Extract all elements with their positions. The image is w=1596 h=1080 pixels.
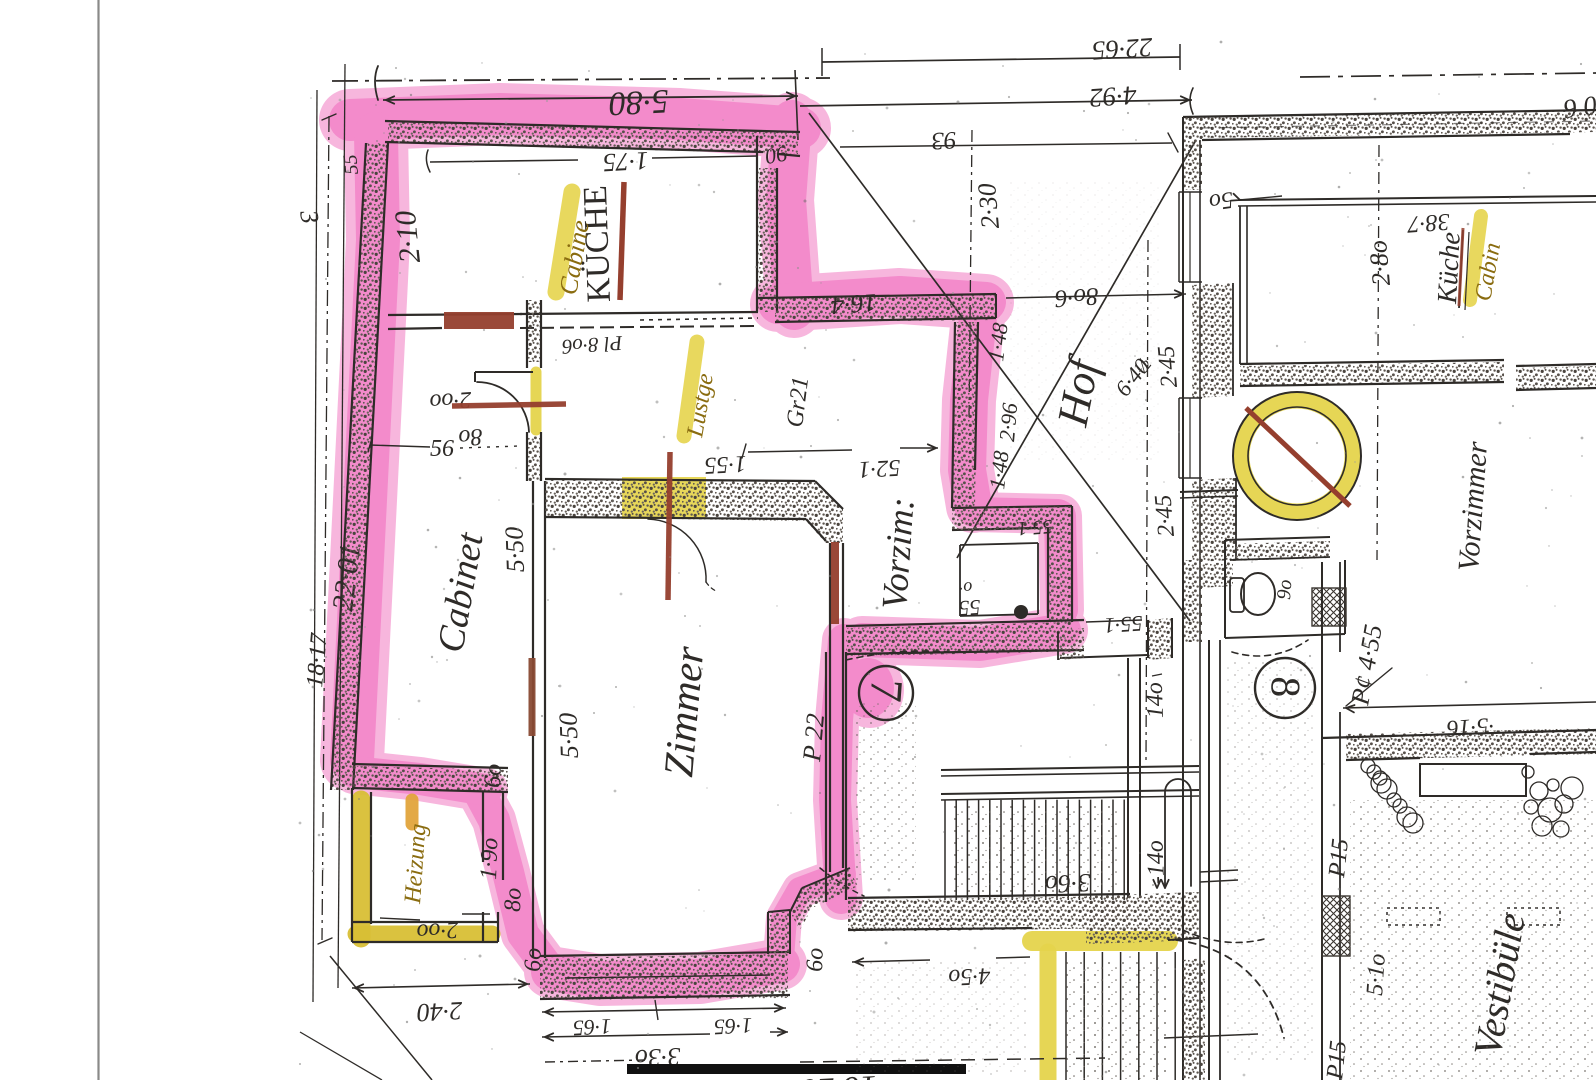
svg-text:1·9o: 1·9o	[476, 837, 503, 880]
svg-text:2·40: 2·40	[416, 996, 463, 1027]
svg-text:16·4: 16·4	[830, 288, 877, 320]
svg-text:8o: 8o	[458, 423, 484, 451]
svg-text:52·1: 52·1	[858, 454, 901, 482]
svg-text:18·17: 18·17	[302, 631, 333, 688]
svg-text:1·65: 1·65	[713, 1013, 753, 1040]
svg-text:90: 90	[763, 141, 789, 169]
svg-text:1·75: 1·75	[602, 146, 649, 177]
svg-text:8o: 8o	[500, 887, 527, 912]
svg-text:1·48: 1·48	[984, 449, 1014, 490]
svg-text:2·45: 2·45	[1150, 494, 1180, 538]
svg-text:o·: o·	[958, 578, 973, 599]
svg-text:2·oo: 2·oo	[416, 916, 460, 945]
svg-text:56: 56	[430, 436, 454, 462]
svg-text:-14o: -14o	[1142, 840, 1170, 885]
svg-text:P15: P15	[1322, 1039, 1352, 1080]
svg-text:Pl 8·o6: Pl 8·o6	[561, 331, 625, 359]
svg-text:P15: P15	[1324, 837, 1354, 879]
svg-text:2·10: 2·10	[389, 209, 427, 265]
svg-text:4·92: 4·92	[1088, 80, 1137, 113]
svg-text:55: 55	[339, 154, 363, 176]
svg-text:9o: 9o	[1273, 579, 1296, 600]
svg-text:2·oo: 2·oo	[429, 386, 473, 415]
svg-text:5·50: 5·50	[499, 526, 530, 572]
svg-text:5·50: 5·50	[553, 712, 584, 758]
svg-text:7: 7	[860, 677, 912, 704]
svg-text:1·55: 1·55	[704, 450, 747, 478]
svg-text:Vorzim:: Vorzim:	[874, 496, 922, 611]
svg-text:2·30: 2·30	[972, 182, 1005, 230]
svg-text:2·8o: 2·8o	[1363, 239, 1396, 287]
svg-text:93: 93	[931, 126, 957, 154]
svg-text:5·80: 5·80	[608, 82, 669, 122]
svg-text:14o: 14o	[1142, 682, 1169, 719]
svg-text:6o: 6o	[480, 763, 507, 788]
svg-text:22·65: 22·65	[1091, 32, 1154, 66]
svg-text:6o: 6o	[802, 947, 829, 972]
svg-text:6o: 6o	[520, 947, 547, 972]
svg-text:55·1: 55·1	[1103, 611, 1143, 639]
svg-text:1·48: 1·48	[983, 321, 1013, 362]
